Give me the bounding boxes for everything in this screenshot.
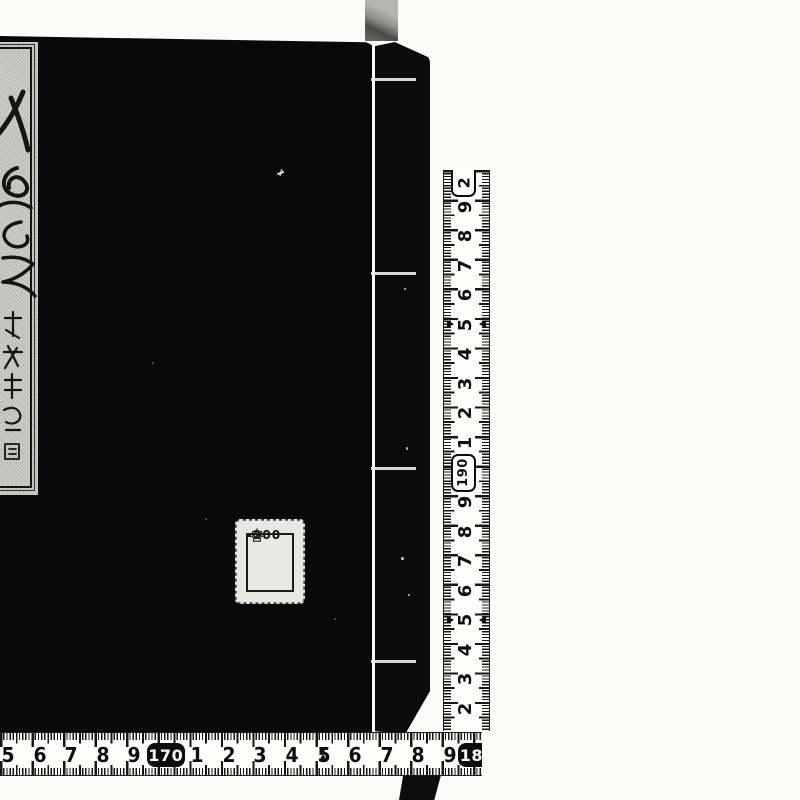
sticker-value: 200 bbox=[253, 528, 281, 542]
paper-speck bbox=[408, 594, 410, 596]
paper-speck bbox=[404, 288, 406, 290]
ruler-mark-168: 8 bbox=[89, 744, 117, 766]
tick-comb-right bbox=[475, 170, 489, 731]
ruler-mark-165: 5 bbox=[0, 744, 22, 766]
vertical-ruler: 298765432119098765432 bbox=[443, 170, 490, 731]
title-label bbox=[0, 42, 38, 495]
ruler-arrow-185 bbox=[479, 616, 486, 624]
ruler-mark-172: 2 bbox=[215, 744, 243, 766]
binding-stitch bbox=[371, 78, 416, 81]
ruler-mark-192: 2 bbox=[456, 398, 476, 428]
ruler-mark-177: 7 bbox=[372, 744, 400, 766]
ruler-mark-169: 9 bbox=[120, 744, 148, 766]
ruler-arrow-175 bbox=[319, 747, 327, 754]
paper-speck bbox=[401, 557, 404, 560]
binding-stitch bbox=[371, 660, 416, 663]
ruler-mark-185: 5 bbox=[456, 605, 476, 635]
ruler-mark-166: 6 bbox=[25, 744, 53, 766]
ruler-mark-193: 3 bbox=[456, 369, 476, 399]
ruler-arrow-175 bbox=[319, 754, 327, 761]
ruler-mark-194: 4 bbox=[456, 339, 476, 369]
ruler-mark-180: 180 bbox=[458, 743, 482, 767]
paper-speck bbox=[334, 618, 336, 620]
horizontal-ruler: 56789170123456789180 bbox=[0, 732, 482, 776]
sticker-table: 300200 bbox=[246, 533, 294, 592]
ruler-mark-170: 170 bbox=[147, 743, 185, 767]
ruler-mark-198: 8 bbox=[456, 221, 476, 251]
ruler-mark-189: 9 bbox=[456, 487, 476, 517]
binding-stitch bbox=[371, 272, 416, 275]
paper-speck bbox=[205, 518, 207, 520]
ruler-mark-167: 7 bbox=[57, 744, 85, 766]
calligraphy-strokes bbox=[0, 50, 38, 490]
ruler-arrow-195 bbox=[447, 320, 454, 328]
paper-speck bbox=[406, 447, 408, 450]
ruler-mark-195: 5 bbox=[456, 310, 476, 340]
photo-stage: 300200 298765432119098765432 56789170123… bbox=[0, 0, 800, 800]
ruler-arrow-195 bbox=[479, 320, 486, 328]
ruler-mark-173: 3 bbox=[246, 744, 274, 766]
ruler-mark-182: 2 bbox=[456, 694, 476, 724]
ruler-mark-197: 7 bbox=[456, 251, 476, 281]
ruler-mark-187: 7 bbox=[456, 546, 476, 576]
ruler-mark-196: 6 bbox=[456, 280, 476, 310]
tape-stand bbox=[399, 775, 441, 800]
ruler-mark-199: 9 bbox=[456, 192, 476, 222]
bookmark-ribbon bbox=[365, 0, 398, 41]
ruler-arrow-185 bbox=[447, 616, 454, 624]
ruler-mark-178: 8 bbox=[404, 744, 432, 766]
book-binding-edge bbox=[375, 42, 430, 734]
ruler-mark-188: 8 bbox=[456, 517, 476, 547]
ruler-mark-171: 1 bbox=[183, 744, 211, 766]
paper-speck bbox=[152, 362, 154, 364]
ruler-mark-190: 190 bbox=[451, 454, 476, 492]
binding-stitch bbox=[371, 467, 416, 470]
ruler-mark-183: 3 bbox=[456, 664, 476, 694]
ruler-mark-184: 4 bbox=[456, 635, 476, 665]
ruler-mark-186: 6 bbox=[456, 576, 476, 606]
ruler-mark-176: 6 bbox=[341, 744, 369, 766]
ruler-mark-174: 4 bbox=[278, 744, 306, 766]
book-cover bbox=[0, 36, 372, 737]
price-sticker: 300200 bbox=[237, 521, 303, 602]
